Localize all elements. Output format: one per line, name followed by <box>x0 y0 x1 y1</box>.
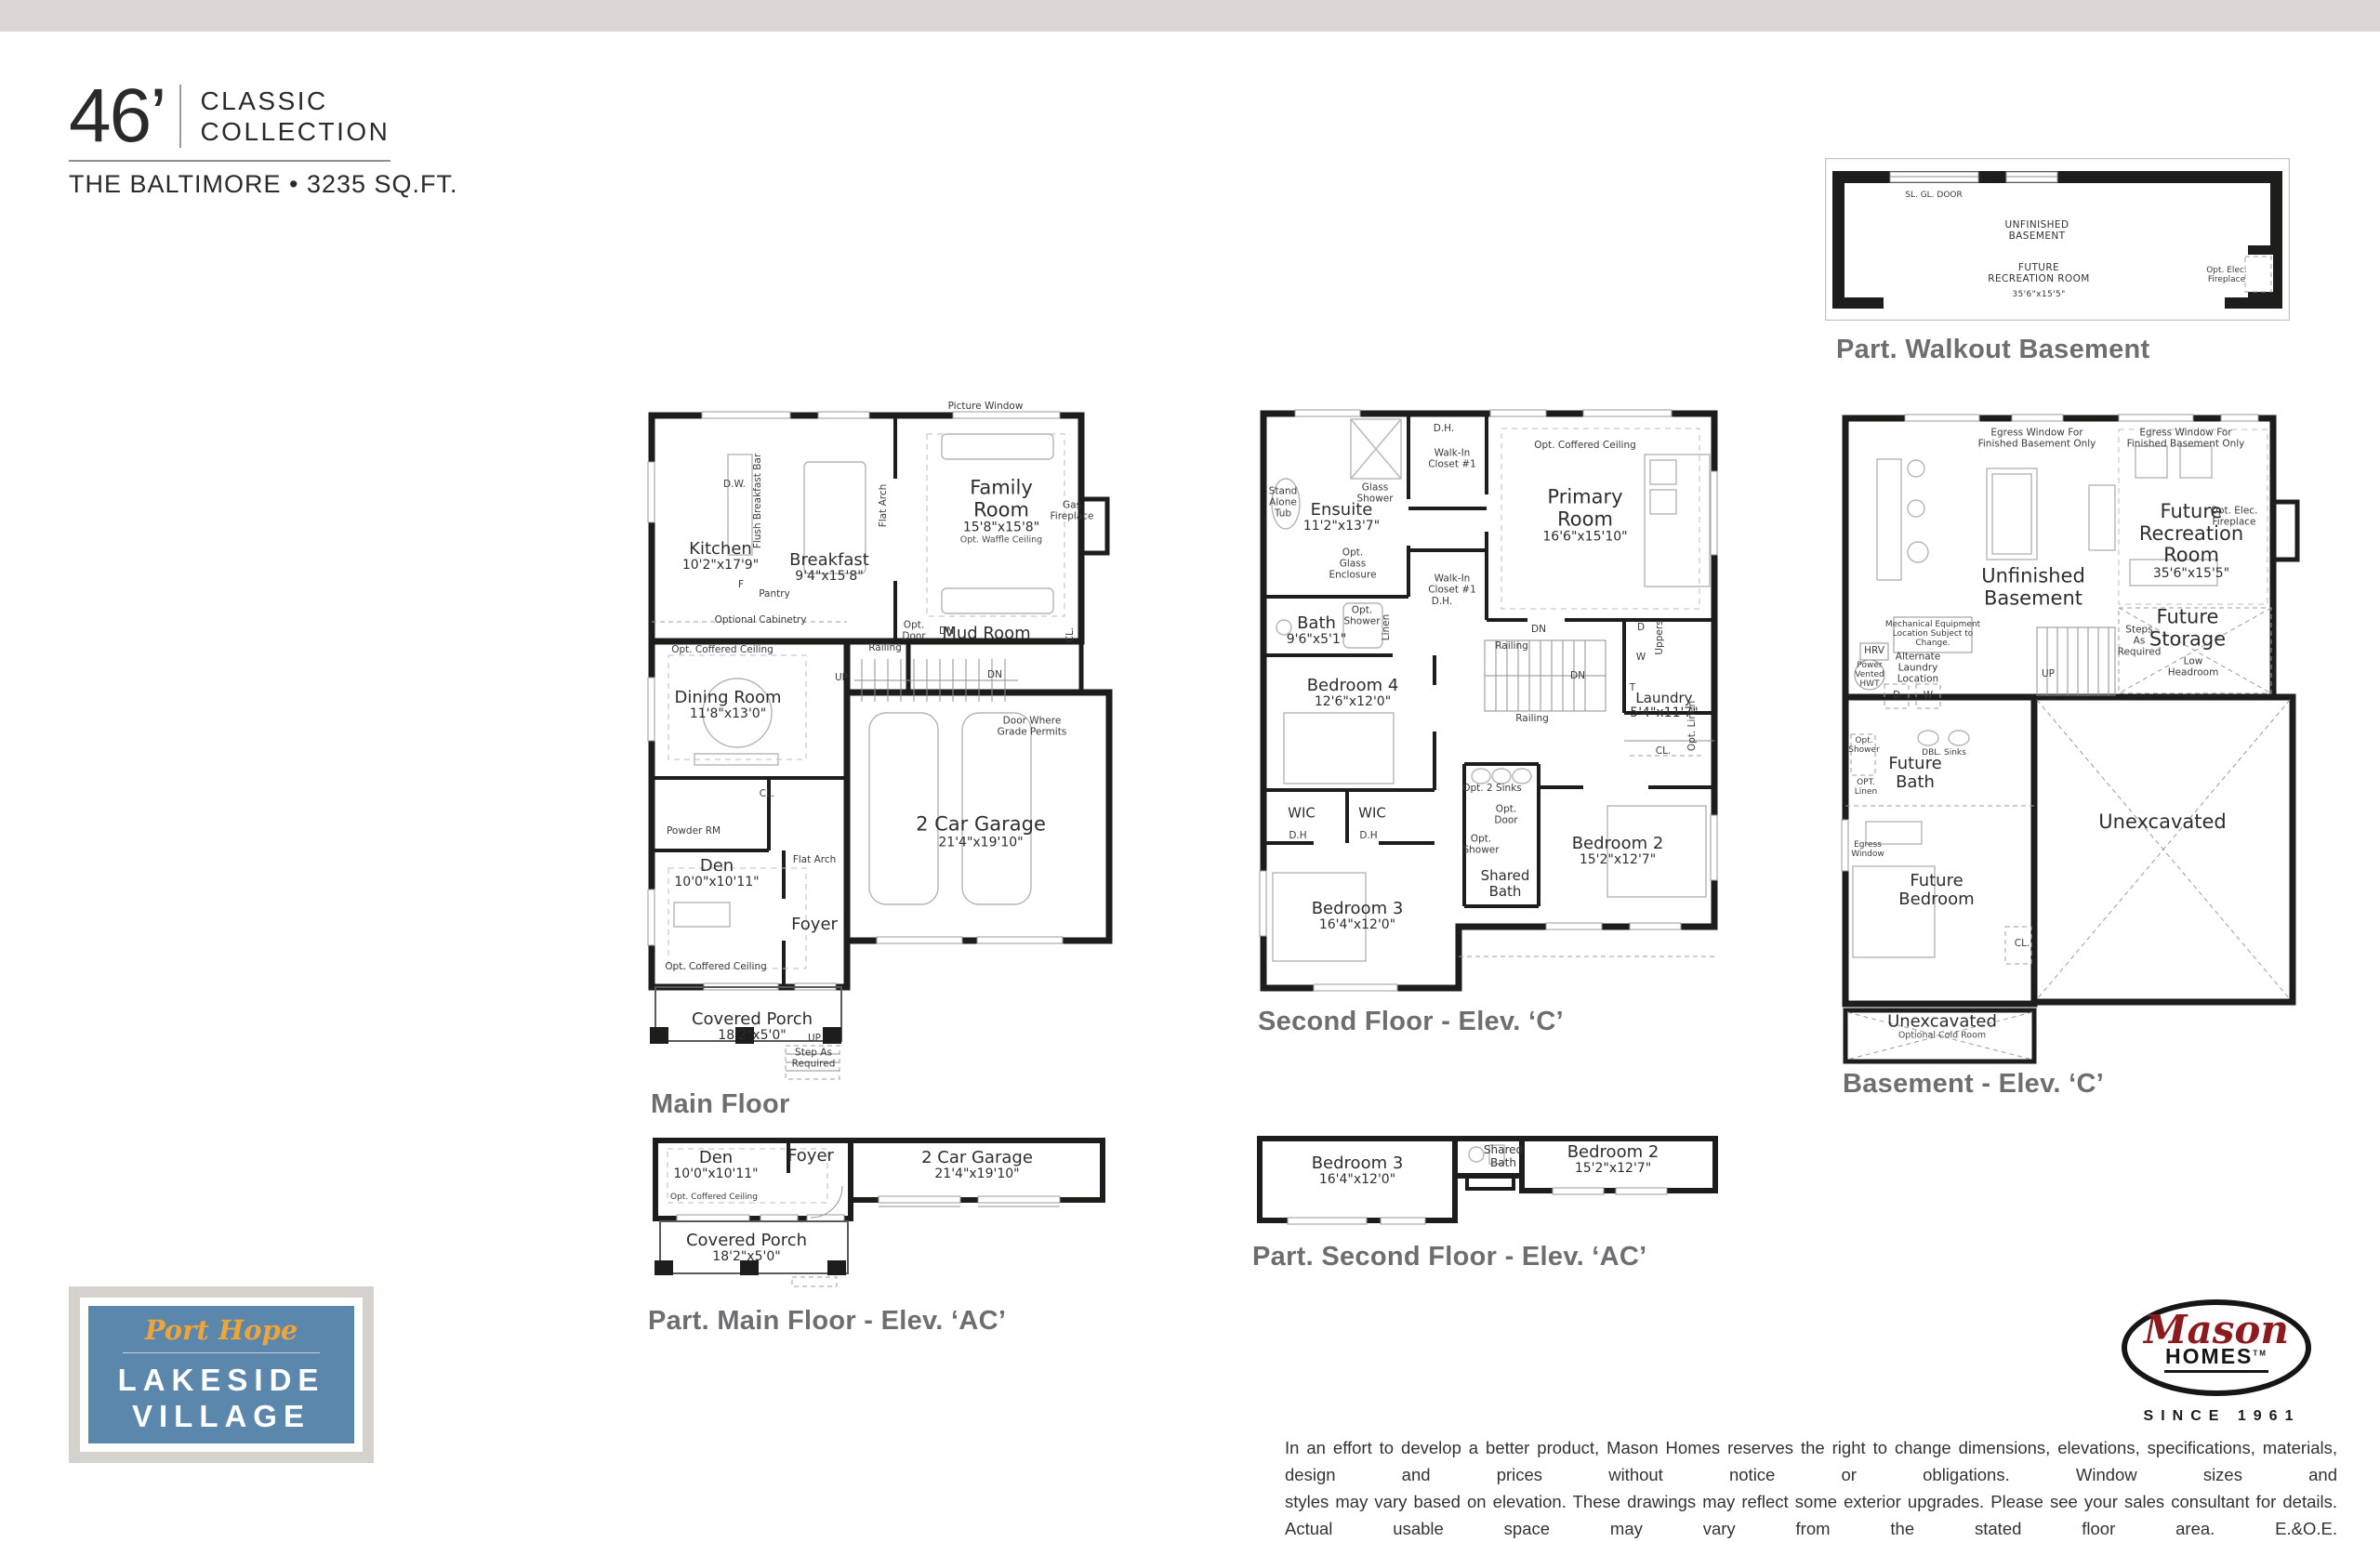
note-part-den-coffered: Opt. Coffered Ceiling <box>670 1193 758 1202</box>
note-opt-glass-enclosure: Opt. Glass Enclosure <box>1329 547 1376 580</box>
note-step-as-required: Step As Required <box>792 1048 836 1070</box>
label-foyer: Foyer <box>791 916 838 934</box>
label-wic-right: WIC <box>1358 806 1386 822</box>
note-up-porch: UP <box>808 1034 821 1045</box>
model-name: THE BALTIMORE • 3235 SQ.FT. <box>69 170 458 199</box>
label-den: Den10'0"x10'11" <box>674 857 759 890</box>
note-pantry: Pantry <box>759 589 790 600</box>
note-opt-linen: Opt. Linen <box>1687 701 1699 751</box>
label-breakfast: Breakfast9'4"x15'8" <box>789 551 869 585</box>
label-primary-room: Primary Room16'6"x15'10" <box>1518 487 1653 546</box>
label-bedroom-3: Bedroom 316'4"x12'0" <box>1312 900 1404 933</box>
disclaimer-line-2: styles may vary based on elevation. Thes… <box>1285 1488 2337 1542</box>
note-dh-wic-right: D.H <box>1359 831 1377 842</box>
note-dryer: D <box>1893 691 1900 702</box>
caption-main-floor: Main Floor <box>651 1089 790 1120</box>
caption-part-main: Part. Main Floor - Elev. ‘AC’ <box>648 1306 1006 1337</box>
note-uppers: Uppers <box>1655 620 1666 654</box>
note-flat-arch-1: Flat Arch <box>879 484 890 528</box>
disclaimer-line-1: In an effort to develop a better product… <box>1285 1434 2337 1488</box>
note-dh-top: D.H. <box>1434 424 1454 435</box>
note-egress-1: Egress Window For Finished Basement Only <box>1978 428 2096 450</box>
lakeside-village-logo: Port Hope LAKESIDE VILLAGE <box>69 1286 374 1463</box>
label-part-shared-bath: Shared Bath <box>1484 1143 1523 1169</box>
label-ensuite: Ensuite11'2"x13'7" <box>1303 501 1380 534</box>
logo-divider <box>123 1352 320 1353</box>
note-railing: Railing <box>868 643 902 654</box>
note-walkout-fireplace: Opt. Elec. Fireplace <box>2206 266 2247 284</box>
label-wic-left: WIC <box>1288 806 1316 822</box>
label-mud-room: Mud Room <box>942 625 1030 643</box>
collection-line2: COLLECTION <box>200 117 390 146</box>
note-alt-laundry: Alternate Laundry Location <box>1896 652 1940 684</box>
note-egress-2: Egress Window For Finished Basement Only <box>2127 428 2245 450</box>
note-up: UP <box>2042 669 2055 680</box>
note-dh-bottom: D.H. <box>1432 597 1452 608</box>
since-1961-label: SINCE 1961 <box>2138 1408 2306 1425</box>
caption-second-floor: Second Floor - Elev. ‘C’ <box>1258 1007 1564 1037</box>
label-unexcavated-cold-room: UnexcavatedOptional Cold Room <box>1887 1013 1997 1042</box>
label-bedroom-2: Bedroom 215'2"x12'7" <box>1572 835 1664 868</box>
note-opt-2-sinks: Opt. 2 Sinks <box>1462 784 1522 795</box>
note-walkin-closet-2: Walk-In Closet #1 <box>1428 573 1476 596</box>
note-cl: CL. <box>1656 746 1672 758</box>
note-opt-door: Opt. Door <box>1494 804 1517 826</box>
note-stand-alone-tub: Stand Alone Tub <box>1269 486 1298 519</box>
note-dbl-sinks: DBL. Sinks <box>1922 748 1966 758</box>
label-part-bedroom-2: Bedroom 215'2"x12'7" <box>1567 1143 1659 1177</box>
note-picture-window: Picture Window <box>948 402 1024 413</box>
note-steps-required: Steps As Required <box>2118 625 2162 657</box>
note-sl-gl-door: SL. GL. DOOR <box>1905 191 1963 200</box>
port-hope-label: Port Hope <box>145 1314 298 1346</box>
collection-line1: CLASSIC <box>200 86 327 115</box>
note-washer: W <box>1636 652 1646 664</box>
label-future-bath: Future Bath <box>1888 755 1941 792</box>
note-tub: T <box>1630 683 1635 694</box>
note-railing-bottom: Railing <box>1515 714 1549 725</box>
note-powder-rm: Powder RM <box>667 826 721 837</box>
label-walkout-rec-room: FUTURE RECREATION ROOM35'6"x15'5" <box>1988 262 2089 299</box>
note-dn-left: DN <box>1531 625 1546 636</box>
caption-walkout: Part. Walkout Basement <box>1836 335 2150 365</box>
label-dining-room: Dining Room11'8"x13'0" <box>674 689 781 722</box>
note-mechanical: Mechanical Equipment Location Subject to… <box>1885 620 1980 648</box>
note-washer: W <box>1924 691 1933 702</box>
label-bath: Bath9'6"x5'1" <box>1287 614 1347 648</box>
note-door-grade: Door Where Grade Permits <box>998 716 1067 738</box>
part-main-floor-plan: Den10'0"x10'11" Foyer 2 Car Garage21'4"x… <box>651 1136 1106 1289</box>
note-den-coffered: Opt. Coffered Ceiling <box>665 962 767 973</box>
note-opt-shower: Opt. Shower <box>1848 736 1880 755</box>
lakeside-label: LAKESIDE <box>118 1363 325 1399</box>
note-dh-wic-left: D.H <box>1289 831 1306 842</box>
note-fridge: F <box>738 580 744 591</box>
basement-plan: Future Recreation Room35'6"x15'5" Unfini… <box>1840 411 2315 1080</box>
note-dryer: D <box>1637 623 1645 634</box>
part-second-floor-plan: Bedroom 316'4"x12'0" Shared Bath Bedroom… <box>1255 1134 1720 1232</box>
note-linen: Linen <box>1382 614 1393 641</box>
note-flush-breakfast-bar: Flush Breakfast Bar <box>753 454 764 548</box>
label-part-porch: Covered Porch18'2"x5'0" <box>686 1232 807 1265</box>
disclaimer: In an effort to develop a better product… <box>1285 1434 2337 1542</box>
label-walkout-unfinished: UNFINISHED BASEMENT <box>2005 219 2069 242</box>
note-hwt: Power Vented HWT <box>1855 661 1884 689</box>
note-dining-coffered: Opt. Coffered Ceiling <box>671 645 773 656</box>
lot-width-label: 46’ <box>69 82 165 151</box>
label-part-den: Den10'0"x10'11" <box>673 1149 758 1182</box>
note-walkin-closet-1: Walk-In Closet #1 <box>1428 448 1476 470</box>
note-dn-stairs: DN <box>987 670 1002 681</box>
top-bar <box>0 0 2380 32</box>
village-label: VILLAGE <box>132 1399 311 1435</box>
label-part-garage: 2 Car Garage21'4"x19'10" <box>921 1149 1033 1182</box>
note-dw: D.W. <box>723 480 746 491</box>
note-hrv: HRV <box>1864 646 1884 657</box>
note-opt-elec-fireplace: Opt. Elec. Fireplace <box>2211 506 2258 528</box>
note-up-stairs: UP <box>835 673 848 684</box>
main-floor-plan: Kitchen10'2"x17'9" Breakfast9'4"x15'8" F… <box>646 406 1116 1085</box>
caption-basement: Basement - Elev. ‘C’ <box>1843 1069 2104 1100</box>
label-future-bedroom: Future Bedroom <box>1898 872 1974 909</box>
note-cl-basement: CL. <box>2015 939 2030 950</box>
note-flat-arch-2: Flat Arch <box>793 855 837 866</box>
note-cl-powder: CL. <box>760 789 775 800</box>
header-rule <box>69 160 390 162</box>
label-shared-bath: Shared Bath <box>1481 868 1530 900</box>
note-gas-fireplace: Gas Fireplace <box>1051 500 1094 522</box>
label-kitchen: Kitchen10'2"x17'9" <box>682 540 759 573</box>
note-dn-mud: DN <box>939 626 954 638</box>
walkout-basement-plan: SL. GL. DOOR UNFINISHED BASEMENT FUTURE … <box>1825 158 2290 321</box>
header-divider <box>179 85 181 148</box>
note-opt-linen: OPT. Linen <box>1855 778 1877 797</box>
note-cl-mud: CL. <box>1065 627 1077 643</box>
mason-homes-logo: Mason HOMESTM <box>2122 1299 2311 1396</box>
note-opt-door-mud: Opt. Door <box>902 620 925 642</box>
note-glass-shower: Glass Shower <box>1356 482 1393 505</box>
note-optional-cabinetry: Optional Cabinetry <box>715 615 807 626</box>
label-covered-porch: Covered Porch18'2"x5'0" <box>692 1010 813 1044</box>
label-part-bedroom-3: Bedroom 316'4"x12'0" <box>1312 1154 1404 1188</box>
second-floor-plan: Ensuite11'2"x13'7" Primary Room16'6"x15'… <box>1258 406 1720 1015</box>
label-garage: 2 Car Garage21'4"x19'10" <box>916 813 1046 850</box>
caption-part-second: Part. Second Floor - Elev. ‘AC’ <box>1252 1242 1647 1272</box>
note-railing-top: Railing <box>1495 641 1528 652</box>
header: 46’ CLASSICCOLLECTION THE BALTIMORE • 32… <box>69 82 458 199</box>
note-primary-coffered: Opt. Coffered Ceiling <box>1534 441 1636 452</box>
note-low-headroom: Low Headroom <box>2168 656 2219 679</box>
label-unexcavated: Unexcavated <box>2098 811 2226 834</box>
note-opt-shower-bath: Opt. Shower <box>1343 605 1380 627</box>
label-bedroom-4: Bedroom 412'6"x12'0" <box>1307 677 1399 710</box>
label-unfinished-basement: Unfinished Basement <box>1981 565 2085 609</box>
note-egress-window: Egress Window <box>1851 840 1884 859</box>
note-opt-shower-shared: Opt. Shower <box>1462 834 1499 856</box>
note-dn-right: DN <box>1570 671 1585 682</box>
collection-label: CLASSICCOLLECTION <box>200 86 390 147</box>
label-part-foyer: Foyer <box>787 1147 834 1166</box>
mason-rule <box>2164 1370 2268 1373</box>
label-family-room: Family Room15'8"x15'8"Opt. Waffle Ceilin… <box>945 477 1059 545</box>
